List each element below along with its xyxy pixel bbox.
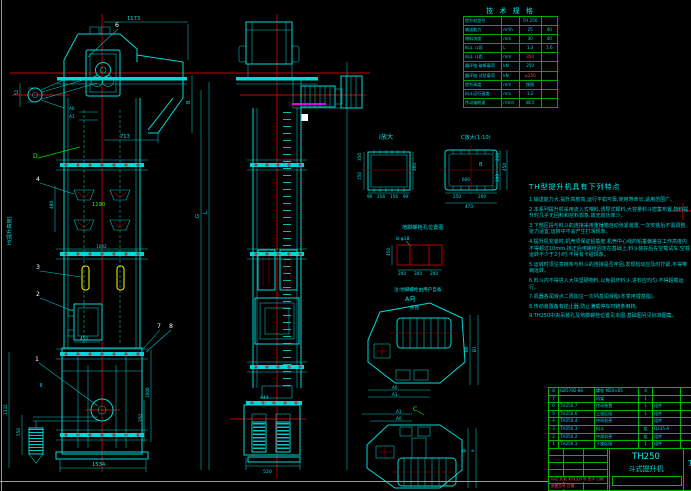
part-7: 7 <box>157 323 161 330</box>
part-code: TH250.6 <box>559 411 595 418</box>
dim-52: 52 <box>14 89 19 95</box>
bottom-view-C: C A1 A0 B a <box>362 406 476 488</box>
dim-350: 350 <box>138 414 143 422</box>
tech-spec-row: 圆环链 试验载荷 kN ≥250 <box>464 72 557 81</box>
part-code: TH250.4 <box>559 418 595 425</box>
sheet-border-left <box>1 0 2 491</box>
parts-row: 1 TH250.1 下部区段 1 组件 <box>549 441 691 448</box>
view-C-label: C <box>413 406 417 413</box>
part-6: 6 <box>115 22 119 29</box>
spec-value-1: TH 250 <box>520 17 542 25</box>
part-name: 中间机壳 <box>595 418 639 425</box>
dim-B: B <box>186 100 192 104</box>
foundation-note: 注:地脚螺栓由用户自备 <box>394 286 442 293</box>
part-name: 传动装置 <box>595 403 639 410</box>
parts-row: 6 TH250.7 传动装置 1 组件 <box>549 403 691 411</box>
spec-value-1: 48.5 <box>520 99 542 107</box>
dim-1534: 1534 <box>92 462 106 468</box>
white-marker <box>301 114 308 121</box>
part-qty: 组 <box>639 426 653 433</box>
tech-spec-row: 提升机型号 TH 250 <box>464 17 557 26</box>
tech-spec-row: 料斗 斗距 mm 350 <box>464 53 557 62</box>
part-qty: 组 <box>639 434 653 441</box>
dim-156b: 156 <box>390 194 398 199</box>
tech-spec-row: 提升高度 mm 按图 <box>464 81 557 90</box>
part-name: 下部区段 <box>595 441 639 448</box>
part-material: 组件 <box>653 441 681 448</box>
parts-row: 8 GB5782-86 螺栓 M20×65 4 <box>549 388 691 396</box>
spec-unit: m/s <box>502 90 519 98</box>
dim-200a: 200 <box>398 271 406 276</box>
spec-label: 料斗 斗容 <box>464 44 502 52</box>
spec-unit: L <box>502 44 519 52</box>
view-A-label: A向 <box>405 295 415 303</box>
part-code: TH250.2 <box>559 434 595 441</box>
dim-1173: 1173 <box>127 16 140 22</box>
side-boot <box>244 386 302 462</box>
dim-150: 150 <box>357 172 362 180</box>
note-line: 8.传动装置备有逆止器,防止满载停车时链条倒转。 <box>529 304 690 311</box>
dim-90a: 90 <box>367 194 373 199</box>
tech-spec-title: 技 术 规 格 <box>463 6 558 16</box>
spec-value-2 <box>542 81 557 89</box>
note-line: 9.TH250中央吊装孔及地脚螺栓位置见本图,基础图另见标准图集。 <box>529 313 690 320</box>
spec-label: 输送能力 <box>464 26 502 34</box>
dim-A1-bottom: A1 <box>396 409 402 414</box>
tech-spec-row: 输送能力 m³/h 25 40 <box>464 26 557 35</box>
notes-heading: TH型提升机具有下列特点 <box>529 182 690 192</box>
spec-value-2 <box>542 72 557 80</box>
part-qty: 1 <box>639 403 653 410</box>
spec-value-2: 1.6 <box>542 44 557 52</box>
part-name: 机架 <box>595 396 639 403</box>
revision-row-labels: 标记 处数 更改文件号 签字 日期 <box>550 477 605 482</box>
dim-520: 520 <box>263 469 272 475</box>
part-code: GB5782-86 <box>559 388 595 395</box>
part-qty: 1 <box>639 441 653 448</box>
part-material: 组件 <box>653 403 681 410</box>
dim-713: 713 <box>120 134 130 140</box>
spec-unit: m³/h <box>502 26 519 34</box>
notes-block: TH型提升机具有下列特点 1.输送能力大,提升高度高,运行平稳可靠,使用寿命长,… <box>529 182 690 323</box>
part-qty: 1 <box>639 396 653 403</box>
cad-drawing-sheet: 1173 713 B 52 A0 A1 480 1190 1002 450 13… <box>0 0 691 491</box>
part-qty <box>639 418 653 425</box>
dim-444: 444 <box>260 395 269 401</box>
dim-600: 600 <box>462 177 470 182</box>
dim-1000: 1000 <box>145 387 150 398</box>
dim-550: 550 <box>16 428 21 436</box>
dim-a-bottom: a <box>470 449 475 452</box>
dim-B1: B1 <box>472 346 477 352</box>
holes-label: 8-φ18 <box>396 236 410 242</box>
spec-label: 提升机型号 <box>464 17 502 25</box>
height-note: H(提升高度) <box>5 216 13 245</box>
parts-row: 2 TH250.2 中部机壳 组 组件 <box>549 434 691 442</box>
title-scale-strip <box>612 476 682 486</box>
part-3: 3 <box>36 264 40 271</box>
part-name: 上部区段 <box>595 411 639 418</box>
spec-unit: kN <box>502 72 519 80</box>
part-8: 8 <box>169 323 173 330</box>
note-line: 6.料斗内不得进入大块坚硬物料,以免损坏料斗,进料应均匀,不得超载运行。 <box>529 278 690 291</box>
part-no: 2 <box>549 434 559 441</box>
dim-A1-top: A1 <box>392 392 398 397</box>
spec-value-1: 1.3 <box>520 44 542 52</box>
dim-450-right: 450 <box>502 163 507 171</box>
note-line: 2.本系列提升机采用流入式喂料,诱导式卸料,大容量料斗密集布置,物料提升时几乎无… <box>529 207 690 220</box>
spec-value-2 <box>542 99 557 107</box>
dim-90b: 90 <box>403 194 409 199</box>
part-no: 1 <box>549 441 559 448</box>
front-dimensions: 1173 713 B 52 A0 A1 480 1190 1002 450 13… <box>3 16 209 472</box>
dim-A0: A0 <box>69 106 75 111</box>
dim-470: 470 <box>465 204 473 209</box>
spec-label: 物料块度 <box>464 35 502 43</box>
dim-1190: 1190 <box>92 202 105 208</box>
part-name: 螺栓 M20×65 <box>595 388 639 395</box>
parts-list: 8 GB5782-86 螺栓 M20×65 4 7 机架 1 <box>548 387 691 455</box>
spec-value-1: 30 <box>520 35 542 43</box>
part-weight <box>681 426 691 433</box>
foundation-bolt-detail: 地脚螺栓孔位置图 8-φ18 450 200 300 200 注:地脚螺栓由用户… <box>386 223 444 311</box>
part-weight <box>681 441 691 448</box>
dim-200-right: 200 <box>495 174 500 182</box>
part-material: Q235-A <box>653 426 681 433</box>
dim-200-bottom: 200 <box>478 194 486 199</box>
front-view: 1173 713 B 52 A0 A1 480 1190 1002 450 13… <box>3 16 209 472</box>
side-view: 444 520 <box>236 22 362 475</box>
section-C-detail: C放大(1:10) 600 B 250 200 470 250 200 450 <box>440 133 507 209</box>
dim-A1: A1 <box>69 114 75 119</box>
spec-unit <box>502 17 519 25</box>
part-no: 5 <box>549 411 559 418</box>
part-no: 8 <box>549 388 559 395</box>
dim-156a: 156 <box>377 194 385 199</box>
tech-spec-row: 传动轴转速 r/min 48.5 <box>464 99 557 107</box>
spec-label: 料斗运行速度 <box>464 90 502 98</box>
dim-L: L <box>203 211 209 214</box>
note-line: 5.运转时须注意链条与料斗的连接是否牢固,发现松动应及时拧紧,不得带病运转。 <box>529 262 690 275</box>
part-weight <box>681 411 691 418</box>
archive-row-labels: 底图总号 日期 <box>550 484 575 489</box>
part-material: 组件 <box>653 434 681 441</box>
spec-value-1: 按图 <box>520 81 542 89</box>
title-name: 斗式提升机 <box>610 464 682 474</box>
dim-360: 360 <box>412 163 417 171</box>
part-weight <box>681 396 691 403</box>
spec-value-1: 25 <box>520 26 542 34</box>
part-material: 组件 <box>653 418 681 425</box>
parts-row: 3 TH250.3 料斗 组 Q235-A <box>549 426 691 434</box>
part-material <box>653 388 681 395</box>
spec-label: 提升高度 <box>464 81 502 89</box>
spec-unit: mm <box>502 35 519 43</box>
spec-value-1: 1.2 <box>520 90 542 98</box>
tech-spec-row: 料斗 斗容 L 1.3 1.6 <box>464 44 557 53</box>
dim-450: 450 <box>80 336 88 341</box>
dim-250-bottom: 250 <box>453 194 461 199</box>
parts-row: 4 TH250.4 中间机壳 组件 <box>549 418 691 426</box>
part-no: 6 <box>549 403 559 410</box>
title-block: 标记 处数 更改文件号 签字 日期 底图总号 日期 TH250 斗式提升机 TH… <box>548 448 691 491</box>
part-name: 中部机壳 <box>595 434 639 441</box>
front-boot <box>29 348 148 463</box>
spec-value-2 <box>542 17 557 25</box>
section-I-detail: Ⅰ放大 360 350 150 90 156 156 90 <box>357 133 417 199</box>
dim-B-bottom: B <box>462 449 467 452</box>
dim-300: 300 <box>414 271 422 276</box>
section-II-label: Ⅱ <box>40 383 43 389</box>
part-weight <box>681 434 691 441</box>
dim-1002: 1002 <box>96 244 107 249</box>
dim-1332: 1332 <box>3 404 8 415</box>
spec-label: 圆环链 试验载荷 <box>464 72 502 80</box>
part-qty: 1 <box>639 411 653 418</box>
note-line: 7.机器各润滑点二周加注一次钙基润滑脂(冬季用锂基脂)。 <box>529 294 690 301</box>
part-code: TH250.1 <box>559 441 595 448</box>
note-line: 1.输送能力大,提升高度高,运行平稳可靠,使用寿命长,适用范围广。 <box>529 197 690 204</box>
spec-value-1: 350 <box>520 53 542 61</box>
spec-value-2: 40 <box>542 26 557 34</box>
tech-spec-row: 料斗运行速度 m/s 1.2 <box>464 90 557 99</box>
dim-G: G <box>195 214 201 218</box>
spec-value-1: ≥250 <box>520 72 542 80</box>
tech-spec-table: 技 术 规 格 提升机型号 TH 250 输送能力 m³/h 25 40 物料块… <box>463 6 558 108</box>
front-head <box>28 27 187 133</box>
section-C-label: C放大(1:10) <box>461 133 491 141</box>
dim-250-right: 250 <box>495 153 500 161</box>
part-code: TH250.3 <box>559 426 595 433</box>
spec-label: 圆环链 破断载荷 <box>464 62 502 70</box>
parts-list-rows: 8 GB5782-86 螺栓 M20×65 4 7 机架 1 <box>549 388 691 448</box>
dim-B0: B0 <box>464 346 469 352</box>
label-D: D <box>33 153 38 160</box>
part-material: 组件 <box>653 411 681 418</box>
tech-spec-grid: 提升机型号 TH 250 输送能力 m³/h 25 40 物料块度 mm 30 … <box>463 16 558 108</box>
part-weight <box>681 388 691 395</box>
part-no: 4 <box>549 418 559 425</box>
part-code: TH250.7 <box>559 403 595 410</box>
top-view-A: B0 B1 A0 A1 <box>368 303 478 397</box>
spec-label: 传动轴转速 <box>464 99 502 107</box>
section-I-label: Ⅰ放大 <box>379 133 393 141</box>
part-material <box>653 396 681 403</box>
part-no: 7 <box>549 396 559 403</box>
note-line: 3.下部区段与料斗的连接采用重锤箱自动张紧装置,一次安装后不需调整,张力适宜,运… <box>529 223 690 236</box>
part-name: 料斗 <box>595 426 639 433</box>
spec-unit: r/min <box>502 99 519 107</box>
title-model: TH250 <box>610 452 682 462</box>
part-4: 4 <box>36 176 40 183</box>
spec-value-1: 250 <box>520 62 542 70</box>
spec-value-2 <box>542 90 557 98</box>
part-code <box>559 396 595 403</box>
parts-row: 7 机架 1 <box>549 396 691 404</box>
tech-spec-row: 物料块度 mm 30 40 <box>464 35 557 44</box>
spec-value-2 <box>542 53 557 61</box>
spec-unit: kN <box>502 62 519 70</box>
sheet-border-bottom <box>0 481 548 482</box>
notes-lines: 1.输送能力大,提升高度高,运行平稳可靠,使用寿命长,适用范围广。 2.本系列提… <box>529 197 690 320</box>
label-B: B <box>479 162 483 168</box>
spec-value-2 <box>542 62 557 70</box>
note-line: 4.提升机安装时,机壳须保证铅垂度,机壳中心线的铅垂偏差在工作高度内不得超过10… <box>529 239 690 259</box>
spec-unit: mm <box>502 81 519 89</box>
parts-row: 5 TH250.6 上部区段 1 组件 <box>549 411 691 419</box>
dim-A0-bottom: A0 <box>396 416 402 421</box>
spec-value-2: 40 <box>542 35 557 43</box>
dim-200b: 200 <box>430 271 438 276</box>
spec-unit: mm <box>502 53 519 61</box>
dim-A0-top: A0 <box>392 385 398 390</box>
spec-label: 料斗 斗距 <box>464 53 502 61</box>
part-qty: 4 <box>639 388 653 395</box>
part-no: 3 <box>549 426 559 433</box>
dim-350: 350 <box>357 153 362 161</box>
part-2: 2 <box>36 291 40 298</box>
dim-450-found: 450 <box>386 248 391 256</box>
part-1: 1 <box>35 356 39 363</box>
side-head-drive <box>236 22 362 121</box>
dim-480: 480 <box>49 201 54 209</box>
part-weight <box>681 403 691 410</box>
tech-spec-row: 圆环链 破断载荷 kN 250 <box>464 62 557 71</box>
part-weight <box>681 418 691 425</box>
foundation-caption: 地脚螺栓孔位置图 <box>402 223 444 231</box>
